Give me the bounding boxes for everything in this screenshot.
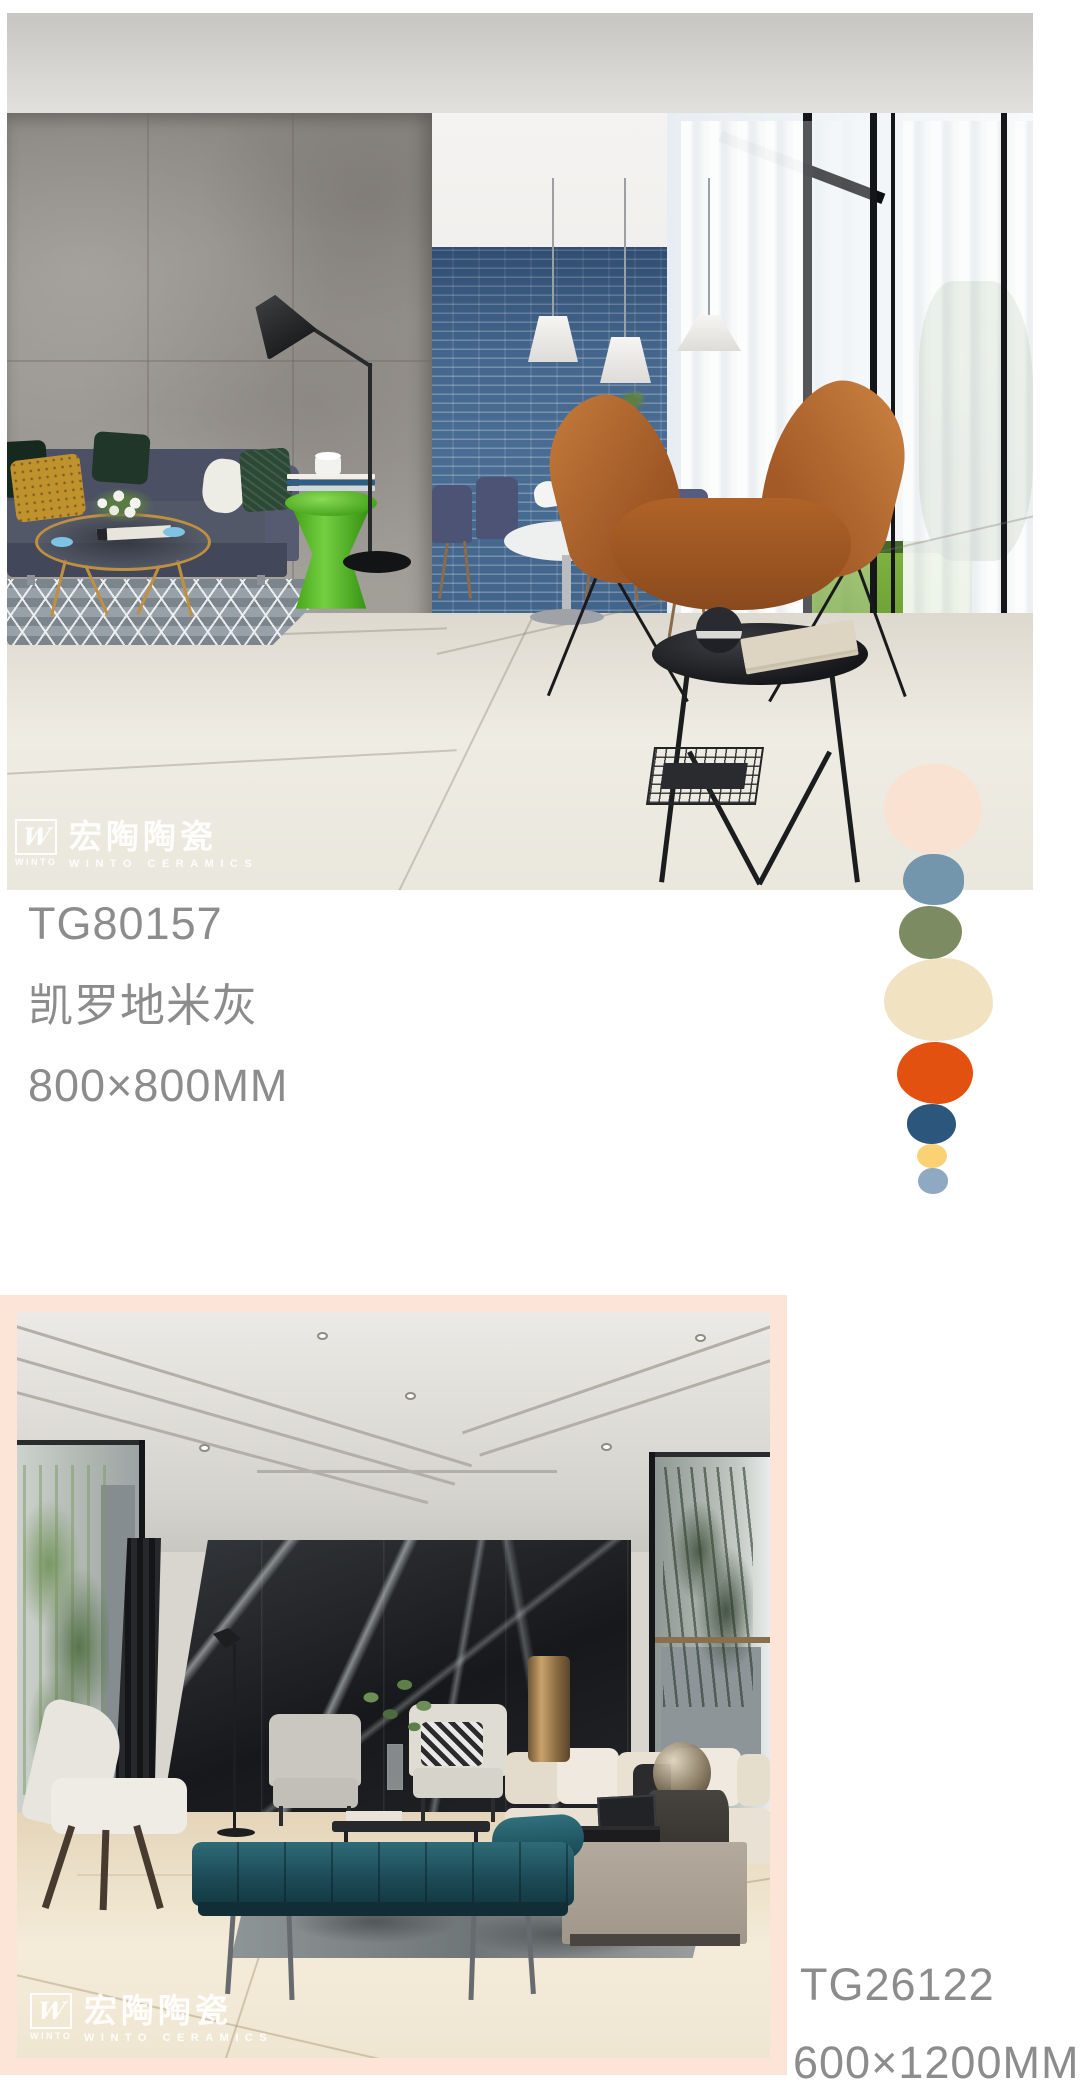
brand-name-en: WINTO CERAMICS [84,2032,273,2044]
gold-coffee-table [35,513,211,619]
brand-name-en: WINTO CERAMICS [69,858,258,870]
floor-lamp-base [217,1828,255,1837]
lounge-chair [25,1704,210,1914]
dining-chair [432,485,472,543]
downlight [405,1392,416,1400]
floor-lamp-base [343,551,411,573]
winto-logo-mark-icon: W [30,1993,72,2029]
palette-dot-steel-blue [903,854,964,905]
pendant-rod [624,178,626,338]
floor-lamp-pole [233,1644,236,1832]
winto-logo: W WINTO 宏陶陶瓷 WINTO CERAMICS [30,1993,273,2044]
book-stack [572,1830,660,1842]
product-size: 800×800MM [28,1063,288,1108]
teacup [51,537,73,547]
plant [347,1668,443,1788]
side-cabinet [562,1842,747,1944]
product-code: TG80157 [28,901,223,946]
palette-dot-olive-green [899,906,962,959]
decor-bowl [696,607,742,653]
flower-bouquet [89,487,155,523]
palette-dot-yellow [917,1144,947,1168]
pendant-rod [708,178,710,316]
cushion [91,431,150,485]
showroom-photo-lounge: W WINTO 宏陶陶瓷 WINTO CERAMICS [17,1312,770,2058]
bamboo-outside [663,1467,753,1707]
palette-dot-peach [884,764,982,854]
downlight [601,1443,612,1451]
winto-logo-mark-icon: W [15,819,57,855]
product-code: TG26122 [800,1962,995,2007]
brand-name-zh: 宏陶陶瓷 [84,1993,273,2029]
wire-basket [646,747,764,805]
white-cup [315,456,341,476]
product-name: 凯罗地米灰 [28,983,258,1028]
dining-chair [476,477,518,539]
bronze-cylinder-lamp [528,1656,570,1762]
teacup [163,527,185,537]
downlight [199,1444,210,1452]
floor-lamp-pole [368,363,372,569]
palette-dot-light-blue [918,1168,948,1194]
palette-dot-navy [907,1104,956,1144]
palette-dot-orange [897,1042,973,1104]
downlight [317,1332,328,1340]
winto-logo: W WINTO 宏陶陶瓷 WINTO CERAMICS [15,819,258,870]
winto-logo-sub: WINTO [30,2031,72,2041]
teal-bench [192,1842,574,1982]
book-stack [287,474,375,492]
book-stack [346,1811,402,1821]
pendant-rod [552,178,554,318]
palette-dot-cream [884,958,993,1041]
brand-name-zh: 宏陶陶瓷 [69,819,258,855]
framed-photo-block: W WINTO 宏陶陶瓷 WINTO CERAMICS [0,1295,787,2075]
downlight [695,1334,706,1342]
winto-logo-sub: WINTO [15,857,57,867]
product-size: 600×1200MM [793,2040,1079,2082]
catalog-page: W WINTO 宏陶陶瓷 WINTO CERAMICS TG80157 凯罗地米… [0,0,1080,2082]
showroom-photo-living-room: W WINTO 宏陶陶瓷 WINTO CERAMICS [7,13,1033,890]
